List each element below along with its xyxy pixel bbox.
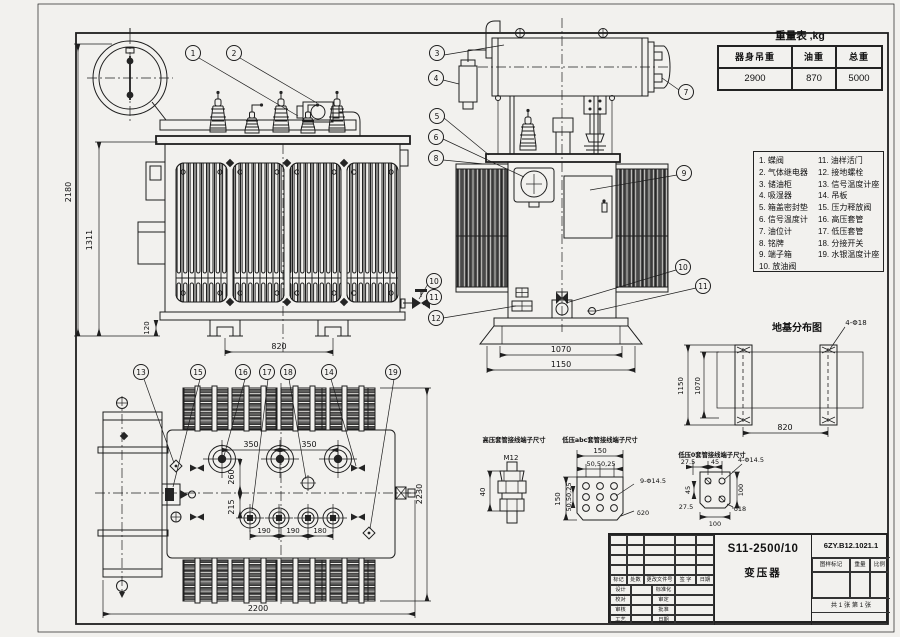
parts-list: 1. 蝶阀 2. 气体继电器 3. 储油柜 4. 吸湿器 5. 箱盖密封垫 6.… [753,151,884,272]
dim-tank-height: 1311 [85,230,94,250]
foundation-plan: 地基分布图 4-Φ18 1150 1070 820 [677,319,867,437]
weight-table-title: 重量表 ,kg [717,27,883,45]
hv-terminal-stud [498,462,526,523]
callout-11: 11 [427,290,442,305]
lv-o-top-a: 27.5 [681,458,695,466]
part-item: 9. 端子箱 [759,249,808,261]
weight-table: 重量表 ,kg 器身吊重 油重 总重 2900 870 5000 [717,27,883,91]
callout-1: 1 [186,46,201,61]
breather [459,50,486,109]
part-item: 11. 油样活门 [818,155,879,167]
radiator-fins-top [183,386,375,431]
role-approve: 批准 [652,605,675,615]
dim-lv-pitch-a: 190 [257,527,270,535]
dim-base-inner: 1070 [551,345,571,354]
role-check: 校对 [610,595,631,605]
role-audit: 审核 [610,605,631,615]
tap-changer [584,96,606,150]
lv-o-left-a: 45 [684,486,692,494]
weight-table-grid: 器身吊重 油重 总重 2900 870 5000 [717,45,883,91]
product-name: 变压器 [715,565,811,580]
tank-cover-front [156,136,410,144]
callout-5: 5 [430,109,445,124]
parts-list-right-column: 11. 油样活门 12. 接地螺栓 13. 信号温度计座 14. 吊板 15. … [818,155,879,261]
svg-text:19: 19 [388,368,398,377]
svg-text:8: 8 [434,154,439,163]
svg-text:12: 12 [431,314,441,323]
part-item: 19. 水银温度计座 [818,249,879,261]
lv-o-left-b: 27.5 [679,503,693,511]
svg-text:3: 3 [435,49,440,58]
svg-text:17: 17 [262,368,272,377]
dim-hv-offset: 260 [227,469,236,484]
base-skirt [480,326,642,344]
dim-lv-pitch-c: 180 [313,527,326,535]
radiator-fins-bottom [183,558,375,603]
svg-text:1: 1 [191,49,196,58]
callout-6: 6 [429,130,444,145]
part-item: 7. 油位计 [759,226,808,238]
radiator-side-left [456,169,508,287]
lv-o-top-b: 45 [711,458,719,466]
dim-rail-length: 1150 [677,377,685,395]
dim-lv-pitch-b: 190 [286,527,299,535]
part-item: 12. 接地螺栓 [818,167,879,179]
drawing-number: 6ZY.B12.1021.1 [812,535,890,558]
lv-abc-pitch-v: 50,50,25 [565,483,573,512]
terminal-box [564,176,612,238]
svg-text:15: 15 [193,368,203,377]
svg-text:4: 4 [434,74,439,83]
hv-terminal-detail: 高压套管接线端子尺寸 M12 40 [479,435,546,523]
role-design: 设计 [610,585,631,595]
svg-text:14: 14 [324,368,334,377]
part-item: 17. 低压套管 [818,226,879,238]
svg-text:6: 6 [434,133,439,142]
svg-text:2: 2 [232,49,237,58]
hv-terminal-thread: M12 [504,454,519,462]
dim-anchor-holes: 4-Φ18 [845,319,866,327]
lv-abc-pitch-h: 50,50,25 [587,460,616,468]
weight-col-total: 总重 [836,46,882,68]
dim-lv-offset: 215 [227,499,236,514]
callout-13: 13 [134,365,149,380]
role-examine: 审定 [652,595,675,605]
scale-label: 比例 [870,558,889,572]
title-block: 标记 处数 更改文件号 签 字 日期 设计 标准化 校对 审定 审核 批准 工艺… [608,533,888,623]
drawing-info: 6ZY.B12.1021.1 图样标记 重量 比例 共 1 张 第 1 张 [811,535,890,625]
part-item: 4. 吸湿器 [759,190,808,202]
weight-label: 重量 [850,558,870,572]
dim-rail-span: 820 [777,423,792,432]
side-view: 1070 1150 3 4 5 6 7 8 9 10 11 12 [429,18,711,373]
lv-o-terminal-detail: 低压0套管接线端子尺寸 27.5 45 4-Φ14.5 100 45 27.5 … [677,450,764,528]
callout-17: 17 [260,365,275,380]
callout-12: 12 [429,311,444,326]
callout-10: 10 [427,274,442,289]
lv-abc-thickness: δ20 [637,509,649,517]
callout-18: 18 [281,365,296,380]
hv-terminal-title: 高压套管接线端子尺寸 [483,435,547,444]
weight-val-total: 5000 [836,68,882,90]
lv-abc-title: 低压abc套管接线端子尺寸 [561,435,638,444]
callout-3: 3 [430,46,445,61]
signature-table: 设计 标准化 校对 审定 审核 批准 工艺 日期 [610,585,714,625]
part-item: 10. 放油阀 [759,261,808,273]
lv-abc-holes-label: 9-Φ14.5 [640,477,666,485]
part-item: 13. 信号温度计座 [818,179,879,191]
dim-hv-pitch-a: 350 [243,440,258,449]
svg-text:11: 11 [698,282,708,291]
base-plate-side [494,318,628,326]
part-item: 1. 蝶阀 [759,155,808,167]
rev-header-count: 处数 [627,575,644,585]
callout-11: 11 [696,279,711,294]
foundation-title: 地基分布图 [772,321,822,334]
grounding-terminal [512,288,532,311]
product-model: S11-2500/10 [715,543,811,555]
callout-15: 15 [191,365,206,380]
dim-slab-width: 1070 [694,377,702,395]
dim-base-height: 120 [143,321,151,334]
radiator-panel [347,163,398,302]
lv-abc-height: 150 [554,492,562,505]
radiator-side-right [616,169,668,287]
callout-19: 19 [386,365,401,380]
svg-text:10: 10 [678,263,688,272]
rev-header-sign: 签 字 [675,575,696,585]
part-item: 14. 吊板 [818,190,879,202]
lv-o-height: 100 [737,484,745,496]
foundation-slab [717,352,863,408]
part-item: 8. 铭牌 [759,238,808,250]
svg-text:11: 11 [429,293,439,302]
lv-abc-holes [583,483,618,512]
callout-4: 4 [429,71,444,86]
callout-16: 16 [236,365,251,380]
dim-total-height: 2180 [64,182,73,202]
revision-table: 标记 处数 更改文件号 签 字 日期 [610,535,714,585]
radiator-panel [290,163,341,302]
dim-wheel-span: 820 [271,342,286,351]
rev-header-date: 日期 [696,575,714,585]
foundation-rail [735,345,752,425]
radiator-panel [176,163,227,302]
part-item: 2. 气体继电器 [759,167,808,179]
callout-8: 8 [429,151,444,166]
part-item: 15. 压力释放阀 [818,202,879,214]
part-item: 3. 储油柜 [759,179,808,191]
svg-text:9: 9 [682,169,687,178]
front-view: 2180 1311 120 820 1 2 10 11 [64,28,442,356]
lv-abc-width: 150 [593,447,606,455]
svg-text:18: 18 [283,368,293,377]
svg-text:5: 5 [435,112,440,121]
product-cell: S11-2500/10 变压器 [714,535,811,625]
dim-hv-pitch-b: 350 [301,440,316,449]
callout-14: 14 [322,365,337,380]
callout-9: 9 [677,166,692,181]
base-plate-front [160,312,405,320]
svg-text:16: 16 [238,368,248,377]
weight-col-oil: 油重 [792,46,836,68]
lv-abc-terminal-detail: 低压abc套管接线端子尺寸 150 50,50,25 150 50,50,25 … [554,435,666,520]
weight-col-body: 器身吊重 [718,46,792,68]
dim-overall-length: 2200 [248,604,268,613]
part-item: 5. 箱盖密封垫 [759,202,808,214]
foundation-rail [820,345,837,425]
part-item: 18. 分接开关 [818,238,879,250]
svg-text:13: 13 [136,368,146,377]
tank-cover-side [486,154,620,162]
callout-2: 2 [227,46,242,61]
conservator-plan [103,412,162,577]
dim-overall-width: 2230 [415,484,424,504]
hv-terminal-height: 40 [479,488,487,497]
role-date: 日期 [652,615,675,625]
radiator-panel [233,163,284,302]
parts-list-left-column: 1. 蝶阀 2. 气体继电器 3. 储油柜 4. 吸湿器 5. 箱盖密封垫 6.… [759,155,808,273]
lv-o-holes-label: 4-Φ14.5 [738,456,764,464]
role-standardize: 标准化 [652,585,675,595]
stamp-label: 图样标记 [812,558,850,572]
rev-header-docno: 更改文件号 [644,575,675,585]
drawing-sheet: { "page": {"bg": "#f2f1ee", "line_color"… [0,0,900,637]
lv-o-width: 100 [709,520,721,528]
callout-7: 7 [679,85,694,100]
part-item: 16. 高压套管 [818,214,879,226]
weight-val-oil: 870 [792,68,836,90]
lv-o-plate [700,472,730,508]
dim-base-outer: 1150 [551,360,571,369]
thermometer [514,168,554,207]
weight-val-body: 2900 [718,68,792,90]
part-item: 6. 信号温度计 [759,214,808,226]
plan-view: 350 350 260 215 190 190 180 2200 2230 13… [95,365,431,619]
drain-valve-front [401,289,430,309]
rev-header-mark: 标记 [610,575,627,585]
svg-text:7: 7 [684,88,689,97]
callout-10: 10 [676,260,691,275]
sheet-info: 共 1 张 第 1 张 [812,598,890,613]
svg-text:10: 10 [429,277,439,286]
lv-o-thickness: δ18 [734,505,746,513]
role-process: 工艺 [610,615,631,625]
